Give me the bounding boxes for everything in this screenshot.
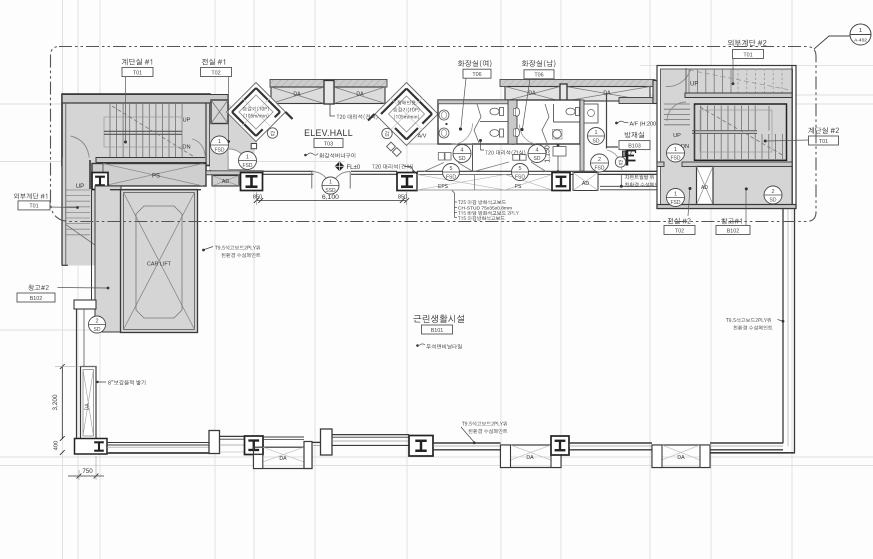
svg-text:T02: T02 bbox=[211, 70, 220, 76]
svg-text:5: 5 bbox=[450, 166, 453, 172]
svg-text:4: 4 bbox=[536, 148, 539, 154]
svg-text:AD: AD bbox=[582, 181, 589, 187]
svg-text:DN: DN bbox=[182, 145, 190, 151]
svg-text:3,200: 3,200 bbox=[52, 394, 59, 410]
svg-text:B102: B102 bbox=[30, 296, 43, 302]
svg-text:B101: B101 bbox=[431, 328, 444, 334]
svg-text:850: 850 bbox=[398, 194, 407, 200]
svg-text:T03: T03 bbox=[324, 141, 333, 147]
svg-text:1: 1 bbox=[329, 180, 332, 186]
svg-text:DA: DA bbox=[279, 456, 287, 462]
svg-text:UP: UP bbox=[183, 118, 191, 124]
svg-text:T06: T06 bbox=[534, 73, 543, 79]
svg-text:1: 1 bbox=[674, 147, 677, 153]
svg-text:DA: DA bbox=[526, 455, 534, 461]
svg-text:DA: DA bbox=[603, 91, 611, 97]
svg-text:T01: T01 bbox=[133, 70, 142, 76]
svg-text:DA: DA bbox=[293, 91, 301, 97]
svg-text:T02: T02 bbox=[675, 228, 684, 234]
svg-text:SD: SD bbox=[593, 138, 600, 144]
svg-text:400: 400 bbox=[54, 441, 60, 451]
svg-text:FSD: FSD bbox=[446, 174, 456, 180]
svg-text:UP: UP bbox=[690, 82, 698, 88]
svg-text:2: 2 bbox=[96, 319, 99, 325]
svg-text:FL±0: FL±0 bbox=[347, 165, 361, 171]
svg-text:UP: UP bbox=[76, 184, 84, 190]
svg-text:A-402: A-402 bbox=[854, 38, 867, 44]
svg-text:FSD: FSD bbox=[595, 165, 605, 171]
svg-text:1: 1 bbox=[246, 155, 249, 161]
svg-text:T06: T06 bbox=[472, 72, 481, 78]
svg-text:FSD: FSD bbox=[515, 174, 525, 180]
svg-text:1: 1 bbox=[859, 28, 862, 34]
svg-text:SD: SD bbox=[770, 197, 777, 203]
svg-text:EPS: EPS bbox=[438, 184, 449, 190]
svg-text:DA: DA bbox=[528, 91, 536, 97]
svg-text:PS: PS bbox=[152, 174, 160, 180]
svg-text:T01: T01 bbox=[743, 52, 752, 58]
svg-text:CAR LIFT: CAR LIFT bbox=[147, 262, 172, 268]
svg-text:FSD: FSD bbox=[671, 155, 681, 161]
svg-text:FSD: FSD bbox=[243, 163, 253, 169]
svg-text:AD: AD bbox=[701, 185, 708, 191]
svg-text:ELEV.HALL: ELEV.HALL bbox=[304, 128, 353, 138]
svg-text:1: 1 bbox=[595, 130, 598, 136]
svg-text:4: 4 bbox=[461, 148, 464, 154]
svg-text:SD: SD bbox=[534, 156, 541, 162]
svg-text:850: 850 bbox=[253, 194, 262, 200]
svg-text:AD: AD bbox=[222, 179, 229, 185]
svg-text:T01: T01 bbox=[29, 204, 38, 210]
svg-text:1: 1 bbox=[674, 192, 677, 198]
svg-text:1: 1 bbox=[218, 139, 221, 145]
svg-text:DA: DA bbox=[356, 91, 364, 97]
svg-text:SD: SD bbox=[459, 156, 466, 162]
svg-text:2: 2 bbox=[772, 189, 775, 195]
svg-text:PS: PS bbox=[515, 184, 522, 190]
svg-text:5: 5 bbox=[519, 166, 522, 172]
svg-text:SSD: SSD bbox=[325, 188, 336, 194]
svg-text:UP: UP bbox=[673, 133, 681, 139]
svg-text:2: 2 bbox=[598, 157, 601, 163]
svg-text:B102: B102 bbox=[727, 228, 740, 234]
svg-text:A/F (H:200): A/F (H:200) bbox=[630, 122, 659, 128]
svg-text:FSD: FSD bbox=[215, 147, 225, 153]
svg-text:CH-STUD 75x35x0.8mm: CH-STUD 75x35x0.8mm bbox=[458, 206, 512, 212]
svg-text:DA: DA bbox=[677, 455, 685, 461]
svg-text:T01: T01 bbox=[819, 139, 828, 145]
svg-text:SD: SD bbox=[94, 327, 101, 333]
svg-text:750: 750 bbox=[82, 468, 93, 475]
svg-text:A/V: A/V bbox=[418, 134, 427, 140]
svg-text:B103: B103 bbox=[628, 143, 641, 149]
svg-text:FSD: FSD bbox=[671, 200, 681, 206]
svg-text:6,100: 6,100 bbox=[322, 194, 339, 201]
